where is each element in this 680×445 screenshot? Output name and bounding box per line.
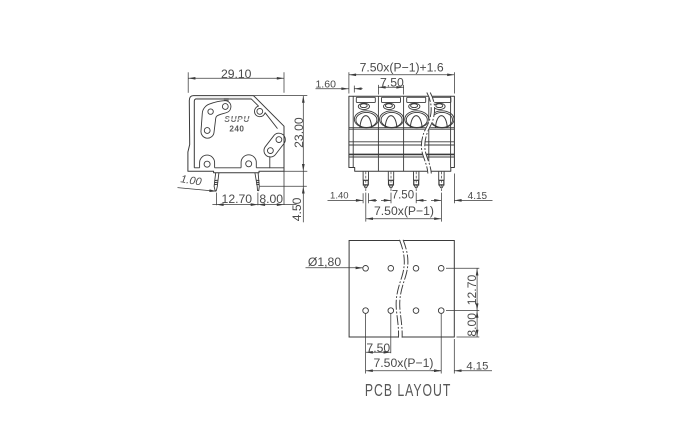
svg-text:7.50: 7.50 bbox=[380, 75, 404, 89]
svg-text:PCB LAYOUT: PCB LAYOUT bbox=[365, 381, 451, 401]
svg-text:4.15: 4.15 bbox=[466, 360, 488, 372]
svg-text:240: 240 bbox=[229, 124, 244, 133]
svg-text:7.50: 7.50 bbox=[392, 189, 414, 201]
svg-text:23.00: 23.00 bbox=[292, 117, 306, 148]
svg-text:4.50: 4.50 bbox=[290, 197, 304, 221]
svg-text:12.70: 12.70 bbox=[222, 192, 253, 206]
svg-text:12.70: 12.70 bbox=[465, 275, 479, 306]
svg-text:8.00: 8.00 bbox=[465, 313, 479, 337]
svg-text:8.00: 8.00 bbox=[259, 192, 283, 206]
svg-text:1.40: 1.40 bbox=[330, 191, 349, 202]
svg-text:29.10: 29.10 bbox=[221, 67, 252, 81]
svg-text:Ø1,80: Ø1,80 bbox=[308, 255, 341, 269]
svg-text:4.15: 4.15 bbox=[468, 191, 488, 202]
svg-text:7.50x(P−1): 7.50x(P−1) bbox=[374, 204, 434, 218]
svg-text:7.50x(P−1): 7.50x(P−1) bbox=[374, 356, 434, 370]
svg-text:7.50: 7.50 bbox=[366, 341, 390, 355]
svg-text:7.50x(P−1)+1.6: 7.50x(P−1)+1.6 bbox=[360, 60, 444, 74]
